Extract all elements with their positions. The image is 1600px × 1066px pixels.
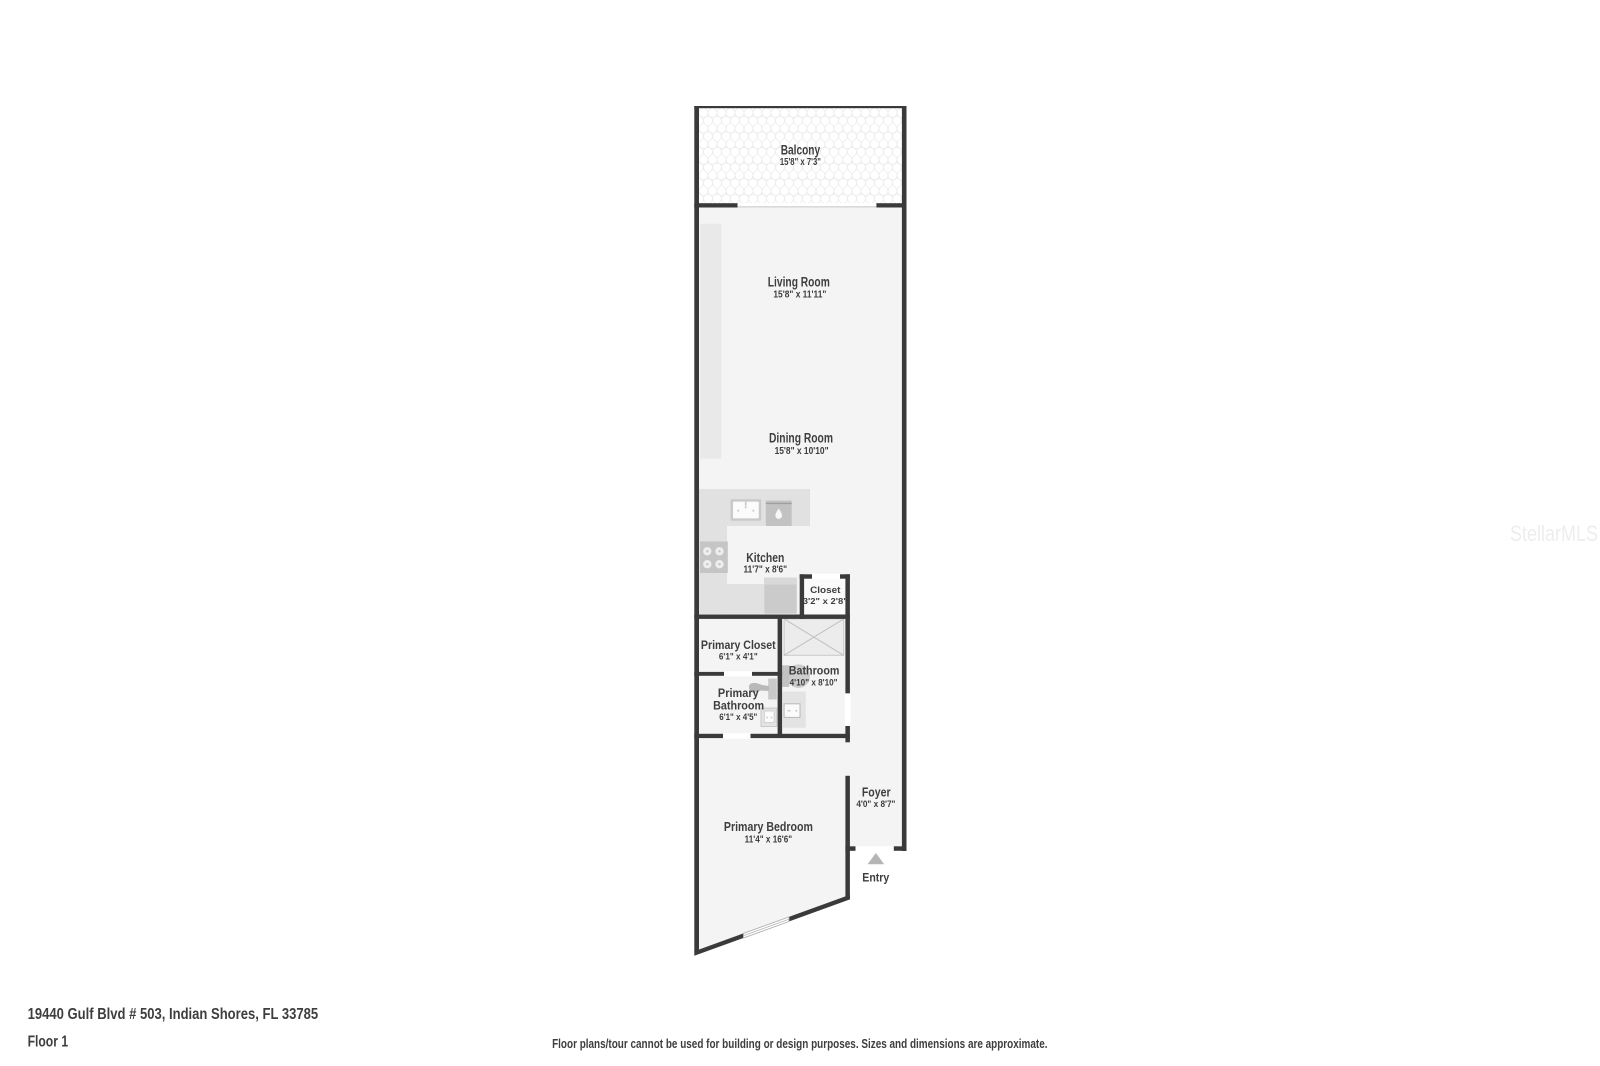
- svg-text:Bathroom: Bathroom: [713, 700, 764, 712]
- svg-text:15'8" x 7'3": 15'8" x 7'3": [780, 156, 821, 168]
- svg-text:11'4" x 16'6": 11'4" x 16'6": [745, 834, 793, 845]
- svg-text:Living Room: Living Room: [768, 275, 830, 290]
- svg-text:Closet: Closet: [810, 585, 841, 596]
- svg-text:6'1" x 4'1": 6'1" x 4'1": [719, 652, 758, 663]
- svg-text:15'8" x 11'11": 15'8" x 11'11": [773, 289, 826, 301]
- svg-text:4'0" x 8'7": 4'0" x 8'7": [856, 799, 895, 810]
- svg-text:Balcony: Balcony: [781, 142, 821, 157]
- svg-text:Dining Room: Dining Room: [769, 431, 833, 446]
- svg-text:Floor 1: Floor 1: [28, 1034, 69, 1051]
- svg-text:11'7" x 8'6": 11'7" x 8'6": [744, 565, 788, 576]
- svg-text:19440 Gulf Blvd # 503, Indian: 19440 Gulf Blvd # 503, Indian Shores, FL…: [28, 1006, 319, 1023]
- svg-text:Kitchen: Kitchen: [746, 551, 784, 565]
- svg-text:Primary Closet: Primary Closet: [701, 640, 776, 652]
- svg-text:Entry: Entry: [862, 872, 890, 884]
- svg-text:StellarMLS: StellarMLS: [1510, 521, 1598, 546]
- svg-text:4'10" x 8'10": 4'10" x 8'10": [790, 678, 838, 689]
- svg-text:Floor plans/tour cannot be use: Floor plans/tour cannot be used for buil…: [552, 1037, 1047, 1051]
- svg-text:3'2" x 2'8": 3'2" x 2'8": [803, 596, 848, 606]
- svg-text:Primary: Primary: [718, 688, 759, 700]
- svg-text:Bathroom: Bathroom: [789, 666, 840, 678]
- svg-text:6'1" x 4'5": 6'1" x 4'5": [719, 712, 757, 723]
- svg-text:Foyer: Foyer: [862, 786, 891, 800]
- svg-text:Primary Bedroom: Primary Bedroom: [724, 820, 813, 834]
- svg-text:15'8" x 10'10": 15'8" x 10'10": [775, 445, 829, 457]
